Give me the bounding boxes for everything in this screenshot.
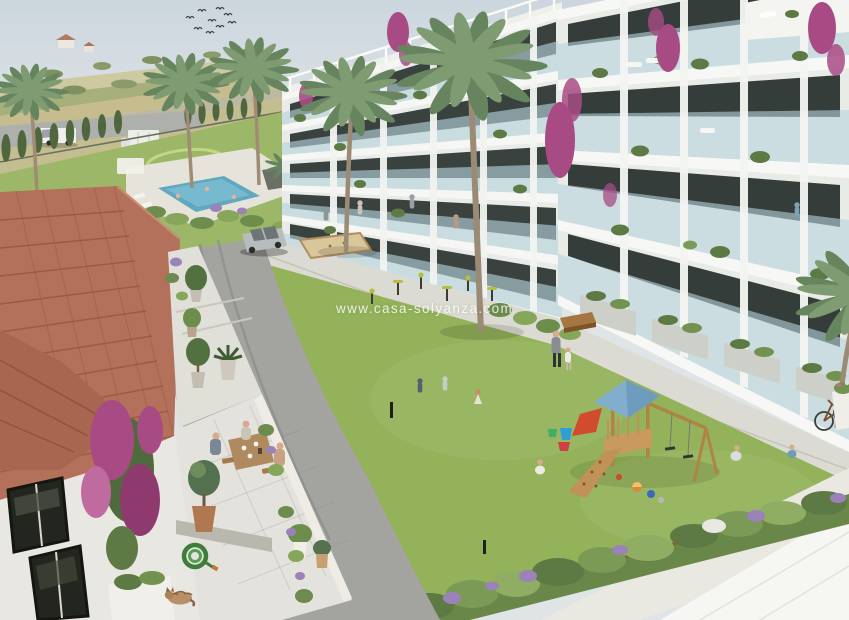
rendering-canvas: www.casa-solyanza.com — [0, 0, 849, 620]
toddler — [442, 376, 447, 390]
child-on-lawn — [357, 200, 362, 214]
pool-pergola — [117, 158, 144, 174]
house-window — [8, 478, 68, 552]
resident-on-balcony — [794, 202, 799, 216]
walker-on-path-2 — [453, 214, 458, 228]
wooden-bench — [560, 312, 596, 333]
walker-on-path-3 — [323, 206, 328, 220]
walker-on-path-1 — [409, 194, 414, 208]
website-watermark: www.casa-solyanza.com — [336, 301, 513, 316]
house-door — [30, 546, 88, 620]
adult-walking — [417, 378, 422, 392]
